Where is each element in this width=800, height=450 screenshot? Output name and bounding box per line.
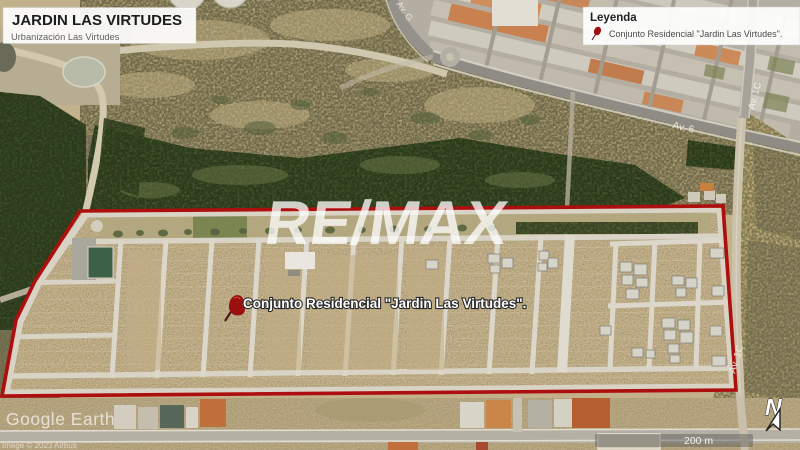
svg-text:200 m: 200 m [684, 435, 713, 447]
svg-text:JARDIN LAS VIRTUDES: JARDIN LAS VIRTUDES [12, 12, 182, 29]
svg-text:Image © 2023 Airbus: Image © 2023 Airbus [2, 441, 77, 450]
svg-text:Conjunto Residencial "Jardin L: Conjunto Residencial "Jardin Las Virtude… [243, 296, 526, 311]
svg-text:Conjunto Residencial "Jardin L: Conjunto Residencial "Jardin Las Virtude… [609, 29, 782, 39]
svg-text:Leyenda: Leyenda [590, 12, 637, 24]
svg-text:RE/MAX: RE/MAX [261, 189, 512, 258]
svg-text:Urbanización Las Virtudes: Urbanización Las Virtudes [11, 32, 120, 42]
svg-text:Google Earth: Google Earth [6, 409, 115, 429]
